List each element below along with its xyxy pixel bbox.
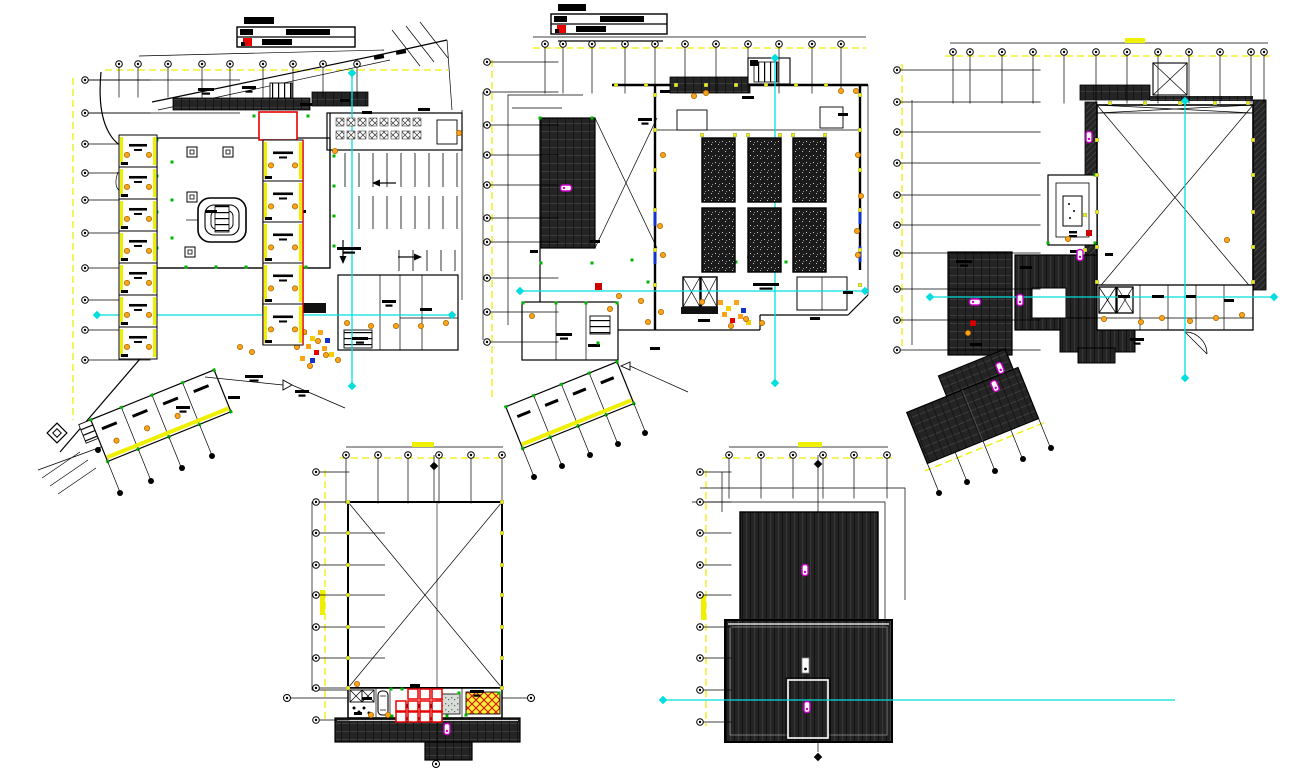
grid-bubble-filled [615, 441, 621, 447]
text-blob [279, 238, 287, 240]
planter-bed [702, 138, 735, 202]
wall-node-icon [346, 625, 350, 629]
room-strip [153, 297, 156, 325]
grid-bubble-label [840, 43, 842, 45]
plan3-annex-roof [894, 345, 1055, 495]
grid-bubble-label [1263, 51, 1265, 53]
text-blob [129, 240, 147, 243]
door-swing-icon [146, 312, 151, 317]
survey-node-icon [245, 266, 248, 269]
text-blob [134, 341, 142, 343]
title-block-plan1 [237, 17, 355, 47]
text-blob [250, 380, 259, 382]
text-blob [556, 333, 572, 336]
grid-bubble-label [201, 63, 203, 65]
equipment-unit [432, 712, 442, 722]
survey-node-icon [540, 262, 543, 265]
wall-node-icon [653, 248, 657, 252]
text-blob [279, 279, 287, 281]
grid-bubble-filled [964, 479, 970, 485]
equipment-unit [432, 689, 442, 699]
planter-bed [702, 208, 735, 272]
door-swing-icon [368, 712, 373, 717]
door-swing-icon [146, 152, 151, 157]
grid-bubble-label [486, 341, 488, 343]
drawing-canvas [0, 0, 1295, 770]
text-blob [530, 250, 538, 253]
grid-bubble-label [292, 63, 294, 65]
grid-bubble-label [896, 224, 898, 226]
text-blob [470, 690, 484, 693]
grid-bubble-label [747, 43, 749, 45]
text-blob [356, 342, 364, 344]
text-blob [180, 411, 187, 413]
text-blob [265, 299, 272, 302]
text-blob [121, 258, 128, 261]
light-fixture-icon [802, 565, 808, 576]
wall-node-icon [764, 83, 768, 87]
grid-bubble-label [896, 69, 898, 71]
survey-node-icon [465, 714, 468, 717]
door-swing-icon [607, 306, 612, 311]
grid-bubble-label [1032, 51, 1034, 53]
light-fixture-icon [444, 724, 450, 735]
text-blob [1224, 299, 1234, 302]
door-swing-icon [1065, 236, 1070, 241]
plan5-structure [692, 488, 905, 761]
grid-bubble-label [896, 319, 898, 321]
grid-bubble-label [624, 43, 626, 45]
table-unit [380, 131, 388, 139]
door-swing-icon [703, 90, 708, 95]
grid-bubble-label [778, 43, 780, 45]
text-blob [560, 338, 568, 340]
grid-bubble-label [896, 162, 898, 164]
text-blob [121, 194, 128, 197]
text-blob [474, 695, 481, 697]
text-blob [343, 252, 355, 254]
wall-node-icon [1213, 101, 1217, 105]
door-swing-icon [344, 320, 349, 325]
text-blob [202, 93, 210, 95]
grid-bubble-label [84, 267, 86, 269]
grid-bubble-label [699, 721, 701, 723]
table-unit [347, 131, 355, 139]
room [263, 304, 303, 345]
door-swing-icon [146, 280, 151, 285]
door-swing-icon [638, 298, 643, 303]
plan1-annex-wing [78, 368, 245, 497]
text-blob [134, 309, 142, 311]
title-block-plan2 [551, 4, 667, 41]
door-swing-icon [838, 88, 843, 93]
light-fixture-icon [561, 185, 572, 191]
wall-node-icon [653, 128, 657, 132]
plan-first-floor [483, 37, 869, 480]
wall-node-icon [1095, 280, 1099, 284]
text-blob [354, 712, 362, 715]
wall-node-icon [734, 83, 738, 87]
text-blob [198, 88, 214, 91]
grid-bubble-label [715, 43, 717, 45]
text-blob [295, 390, 309, 393]
survey-node-icon [333, 155, 336, 158]
wall-node-icon [858, 128, 862, 132]
wall-node-icon [1095, 173, 1099, 177]
text-blob [279, 320, 287, 322]
text-blob [242, 86, 256, 89]
room-strip [153, 137, 156, 165]
text-blob [638, 118, 652, 121]
table-unit [358, 118, 366, 126]
grid-bubble-label [811, 43, 813, 45]
text-blob [753, 283, 779, 286]
room-strip [299, 265, 302, 302]
text-blob [352, 337, 368, 340]
door-swing-icon [146, 248, 151, 253]
door-swing-icon [660, 152, 665, 157]
grid-bubble-label [699, 657, 701, 659]
door-swing-icon [292, 286, 297, 291]
text-blob [337, 247, 361, 250]
wall-node-icon [1095, 210, 1099, 214]
text-blob [410, 684, 420, 687]
door-swing-icon [332, 148, 337, 153]
text-blob [660, 90, 670, 93]
grid-bubble-label [315, 657, 317, 659]
survey-node-icon [333, 215, 336, 218]
survey-node-icon [307, 115, 310, 118]
grid-bubble-label [118, 63, 120, 65]
door-swing-icon [268, 204, 273, 209]
wall-node-icon [858, 168, 862, 172]
grid-bubble-label [315, 687, 317, 689]
text-blob [742, 96, 754, 99]
wall-node-icon [778, 133, 782, 137]
survey-node-icon [1094, 242, 1097, 245]
survey-node-icon [458, 692, 461, 695]
grid-bubble-label [486, 217, 488, 219]
grand-stair [186, 198, 246, 242]
room-strip [299, 224, 302, 261]
text-blob [129, 336, 147, 339]
wall-node-icon [674, 83, 678, 87]
wall-node-icon [614, 83, 618, 87]
survey-node-icon [171, 237, 174, 240]
room-strip [153, 329, 156, 357]
equipment-unit [396, 712, 406, 722]
planter-bed [793, 208, 826, 272]
grid-bubble-label [1157, 51, 1159, 53]
door-swing-icon [307, 363, 312, 368]
survey-node-icon [647, 281, 650, 284]
door-swing-icon [124, 312, 129, 317]
text-blob [760, 288, 773, 290]
text-blob [279, 156, 287, 158]
survey-node-icon [555, 302, 558, 305]
room-strip [299, 183, 302, 220]
text-blob [1186, 295, 1196, 298]
grid-bubble-label [486, 91, 488, 93]
text-blob [121, 290, 128, 293]
grid-bubble-label [229, 63, 231, 65]
grid-bubble-label [315, 501, 317, 503]
text-blob [956, 260, 972, 263]
door-swing-icon [728, 323, 733, 328]
grid-bubble-label [562, 43, 564, 45]
door-swing-icon [323, 352, 328, 357]
text-blob [362, 111, 372, 114]
room-strip [120, 233, 123, 261]
table-unit [391, 131, 399, 139]
text-blob [650, 347, 660, 350]
table-unit [402, 131, 410, 139]
wall-node-icon [346, 531, 350, 535]
grid-bubble-filled [531, 474, 537, 480]
survey-node-icon [591, 117, 594, 120]
text-blob [121, 354, 128, 357]
room-strip [120, 329, 123, 357]
fire-rated-room [259, 112, 297, 140]
door-swing-icon [1101, 316, 1106, 321]
survey-node-icon [333, 245, 336, 248]
grid-bubble-label [501, 454, 503, 456]
door-swing-icon [385, 712, 390, 717]
grid-bubble-label [262, 63, 264, 65]
door-swing-icon [292, 163, 297, 168]
text-blob [265, 340, 272, 343]
survey-node-icon [1047, 242, 1050, 245]
wall-node-icon [823, 133, 827, 137]
text-blob [382, 300, 396, 303]
text-blob [245, 375, 263, 378]
wall-node-icon [1251, 138, 1255, 142]
wall-node-icon [500, 500, 504, 504]
grid-bubble-label [896, 101, 898, 103]
door-swing-icon [1213, 315, 1218, 320]
table-unit [380, 118, 388, 126]
section-leader [621, 362, 688, 392]
wall-node-icon [346, 593, 350, 597]
survey-node-icon [616, 302, 619, 305]
grid-bubble-label [356, 63, 358, 65]
grid-bubble-label [699, 594, 701, 596]
grid-bubble-label [486, 277, 488, 279]
text-blob [970, 343, 982, 346]
door-swing-icon [124, 344, 129, 349]
room-strip [264, 142, 267, 179]
text-blob [300, 103, 312, 106]
grid-bubble-label [654, 43, 656, 45]
text-blob [205, 210, 217, 213]
door-swing-icon [1187, 318, 1192, 323]
grid-bubble-label [896, 194, 898, 196]
wall-node-icon [1083, 213, 1087, 217]
door-swing-icon [268, 327, 273, 332]
survey-node-icon [171, 199, 174, 202]
table-unit [336, 131, 344, 139]
wall-node-icon [1083, 248, 1087, 252]
survey-node-icon [498, 692, 501, 695]
grid-bubble-label [1063, 51, 1065, 53]
text-blob [273, 274, 293, 277]
table-unit [402, 118, 410, 126]
door-swing-icon [146, 344, 151, 349]
survey-node-icon [446, 715, 449, 718]
grid-bubble-label [699, 471, 701, 473]
grid-bubble-label [407, 454, 409, 456]
text-blob [121, 322, 128, 325]
grid-bubble-label [1219, 51, 1221, 53]
room-strip [120, 201, 123, 229]
wall-node-icon [500, 656, 504, 660]
grid-bubble-label [315, 626, 317, 628]
wall-node-icon [346, 500, 350, 504]
text-blob [129, 208, 147, 211]
room-strip [153, 169, 156, 197]
wall-node-icon [1178, 101, 1182, 105]
equipment-unit [408, 689, 418, 699]
door-swing-icon [1138, 319, 1143, 324]
wall-node-icon [1108, 101, 1112, 105]
grid-bubble-label [760, 454, 762, 456]
equipment-unit [408, 712, 418, 722]
grid-bubble-label [1126, 51, 1128, 53]
grid-bubble-label [84, 172, 86, 174]
table-unit [413, 118, 421, 126]
grid-bubble-label [377, 454, 379, 456]
table-unit [347, 118, 355, 126]
survey-node-icon [597, 342, 600, 345]
light-fixture-icon [1017, 295, 1023, 306]
survey-node-icon [401, 688, 404, 691]
grid-bubble-label [345, 454, 347, 456]
vent-icon [802, 658, 809, 673]
door-swing-icon [368, 323, 373, 328]
door-swing-icon [124, 280, 129, 285]
text-blob [246, 91, 253, 93]
room-strip [120, 297, 123, 325]
wall-node-icon [1251, 280, 1255, 284]
grid-bubble-label [952, 51, 954, 53]
grid-bubble-label [544, 43, 546, 45]
light-fixture-icon [970, 299, 981, 305]
door-swing-icon [292, 204, 297, 209]
text-blob [265, 258, 272, 261]
text-blob [129, 304, 147, 307]
grid-bubble-label [84, 329, 86, 331]
grid-bubble-label [84, 232, 86, 234]
text-blob [228, 396, 240, 399]
wall-node-icon [500, 563, 504, 567]
room-strip [153, 265, 156, 293]
wall-node-icon [858, 93, 862, 97]
grid-bubble-filled [642, 430, 648, 436]
grid-bubble-label [792, 454, 794, 456]
door-swing-icon [335, 357, 340, 362]
equipment-unit [408, 701, 418, 711]
grid-bubble-filled [936, 490, 942, 496]
survey-node-icon [215, 266, 218, 269]
text-blob [698, 319, 710, 322]
grid-bubble-label [84, 299, 86, 301]
wall-node-icon [1143, 101, 1147, 105]
door-swing-icon [418, 323, 423, 328]
text-blob [134, 181, 142, 183]
wall-node-icon [500, 686, 504, 690]
wall-node-icon [704, 83, 708, 87]
wall-node-icon [346, 563, 350, 567]
door-swing-icon [146, 184, 151, 189]
wall-node-icon [824, 83, 828, 87]
door-swing-icon [268, 286, 273, 291]
text-blob [340, 99, 350, 102]
text-blob [129, 144, 147, 147]
text-blob [299, 395, 306, 397]
light-fixture-icon [1086, 132, 1092, 143]
wall-node-icon [653, 93, 657, 97]
door-swing-icon [743, 316, 748, 321]
wall-node-icon [653, 168, 657, 172]
planter-bed [748, 138, 781, 202]
text-blob [273, 151, 293, 154]
room-strip [120, 137, 123, 165]
text-blob [279, 197, 287, 199]
text-blob [121, 162, 128, 165]
planter-bed [793, 138, 826, 202]
room [263, 222, 303, 263]
text-blob [960, 265, 968, 267]
sheet [0, 0, 1295, 770]
door-swing-icon [855, 252, 860, 257]
wall-node-icon [644, 83, 648, 87]
grid-bubble-filled [209, 453, 215, 459]
grid-bubble-label [315, 594, 317, 596]
survey-node-icon [253, 115, 256, 118]
grid-bubble-label [486, 241, 488, 243]
room-strip [299, 306, 302, 343]
grid-bubble-filled [587, 452, 593, 458]
door-swing-icon [657, 223, 662, 228]
grid-bubble-label [1001, 51, 1003, 53]
door-swing-icon [965, 330, 970, 335]
text-blob [265, 176, 272, 179]
text-blob [129, 176, 147, 179]
section-marker-icon [430, 455, 438, 502]
door-swing-icon [759, 320, 764, 325]
grid-bubble-label [322, 63, 324, 65]
text-blob [273, 233, 293, 236]
door-swing-icon [443, 320, 448, 325]
text-blob [843, 291, 853, 294]
room [263, 263, 303, 304]
text-blob [1134, 343, 1141, 345]
survey-node-icon [305, 266, 308, 269]
door-swing-icon [853, 88, 858, 93]
text-blob [176, 406, 190, 409]
table-unit [369, 131, 377, 139]
table-unit [358, 131, 366, 139]
text-blob [642, 123, 649, 125]
grid-bubble-label [486, 184, 488, 186]
grid-bubble-label [896, 252, 898, 254]
survey-node-icon [390, 688, 393, 691]
text-blob [1020, 266, 1032, 269]
grid-bubble-label [896, 131, 898, 133]
grid-bubble-label [84, 79, 86, 81]
grid-bubble-label [84, 143, 86, 145]
text-blob [1118, 295, 1130, 298]
